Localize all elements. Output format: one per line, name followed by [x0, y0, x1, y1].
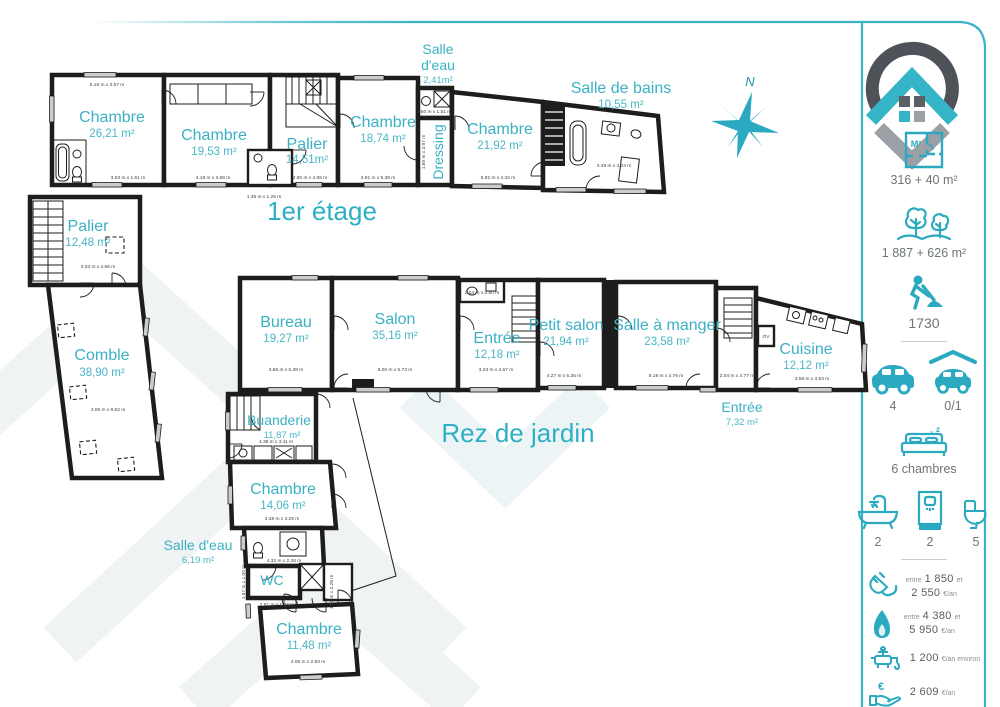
- room-label: Salon: [375, 311, 416, 328]
- cost-electricity: entre 1 850 et 2 550 €/an: [868, 572, 963, 602]
- shower-icon: [913, 490, 947, 532]
- title-1er-etage: 1er étage: [267, 196, 377, 226]
- room-dim: 4.06 m x 2.93 m: [291, 659, 325, 665]
- stat-bathtubs: 2: [857, 492, 899, 549]
- room-dim: 1.55 m x 2.28 m: [329, 575, 335, 609]
- room-dim: 3.58 m x 3.53 m: [795, 376, 829, 382]
- cost-value: 1 850: [925, 573, 954, 585]
- room-dim: 3.23 m x 4.67 m: [479, 367, 513, 373]
- stat-bathrooms: 2 2 5: [857, 490, 991, 549]
- svg-text:z: z: [936, 425, 940, 434]
- closet-row: [170, 84, 252, 104]
- cost-pre: entre: [904, 614, 920, 621]
- room-dim: 1.35 m x 1.25 m: [247, 194, 281, 200]
- baths-value: 2: [875, 535, 882, 549]
- room-dim: 4.38 m x 3.29 m: [265, 516, 299, 522]
- floor-plan-page: N 1er étage Rez de jardin Chambre 26,21 …: [0, 0, 1000, 707]
- room-dim: 1.60 m x 3.97 m: [421, 135, 427, 169]
- room-area: 18,74 m²: [360, 133, 406, 145]
- room-petit-salon: [538, 280, 604, 388]
- room-label: Dressing: [430, 124, 446, 179]
- room-dim: 2.80 m x 4.06 m: [293, 175, 327, 181]
- room-label: WC: [260, 572, 283, 588]
- room-label: Palier: [287, 136, 329, 153]
- room-dim: 3.53 m x 1.61 m: [111, 175, 145, 181]
- land-value: 1 887 + 626 m²: [882, 246, 966, 260]
- room-area: 26,21 m²: [89, 128, 135, 140]
- room-label: Entrée: [721, 399, 762, 415]
- bathtub-icon: [857, 492, 899, 532]
- construction-worker-icon: [901, 274, 947, 312]
- bedrooms-value: 6 chambres: [891, 462, 956, 476]
- room-label: Comble: [74, 347, 129, 364]
- gas-flame-icon: [868, 609, 896, 639]
- stat-land: 1 887 + 626 m²: [882, 203, 966, 260]
- parking-value: 4: [890, 399, 897, 413]
- room-area: 23,58 m²: [644, 336, 690, 348]
- room-dim: 2.04 m x 0.80 m: [465, 290, 499, 296]
- cost-value: 1 200: [910, 652, 939, 664]
- svg-text:€: €: [878, 681, 884, 693]
- room-dim: 5.19 m x 4.76 m: [649, 373, 683, 379]
- room-area: 19,53 m²: [191, 146, 237, 158]
- room-label: d'eau: [421, 57, 455, 73]
- room-area: 10,55 m²: [598, 99, 644, 111]
- room-salle-a-manger: [616, 282, 716, 388]
- room-dim: 3.66 m x 5.38 m: [269, 367, 303, 373]
- room-area: 2,41m²: [423, 75, 453, 86]
- room-label: Salle à manger: [613, 317, 721, 334]
- room-label: Salle de bains: [571, 80, 672, 97]
- divider: [901, 559, 947, 560]
- room-dim: 4.27 m x 5.35 m: [547, 373, 581, 379]
- garage-value: 0/1: [944, 399, 961, 413]
- stat-garage: 0/1: [929, 350, 977, 413]
- stairwell-block: [543, 104, 565, 166]
- cost-unit: €/an: [943, 591, 957, 598]
- room-label: Salle: [422, 41, 453, 57]
- closet-label: OV: [763, 334, 771, 340]
- svg-text:z: z: [930, 431, 933, 437]
- stat-surface: M² 316 + 40 m²: [890, 130, 957, 187]
- showers-value: 2: [927, 535, 934, 549]
- room-area: 21,94 m²: [543, 336, 589, 348]
- room-area: 12,12 m²: [783, 360, 829, 372]
- room-label: Entrée: [473, 330, 520, 347]
- room-dim: 5.92 m x 4.32 m: [481, 175, 515, 181]
- electric-plug-icon: [868, 572, 898, 602]
- room-comble: [48, 285, 162, 478]
- hand-euro-icon: €: [868, 679, 902, 707]
- cost-water: 1 200 €/an environ: [868, 646, 980, 672]
- room-area: 12,48 m²: [65, 237, 111, 249]
- cost-value: 2 609: [910, 686, 939, 698]
- title-rez-de-jardin: Rez de jardin: [441, 418, 594, 448]
- toilets-value: 5: [973, 535, 980, 549]
- room-label: Palier: [68, 218, 110, 235]
- room-dim: 6.00 m x 5.73 m: [378, 367, 412, 373]
- floor-plan-drawing: N 1er étage Rez de jardin Chambre 26,21 …: [0, 0, 1000, 707]
- compass-north-label: N: [745, 74, 755, 89]
- cost-value: 4 380: [923, 610, 952, 622]
- room-label: Cuisine: [779, 341, 832, 358]
- room-dim: 1.60 m x 1.51 m: [417, 109, 451, 115]
- cost-unit: €/an environ: [942, 656, 981, 663]
- room-label: Chambre: [350, 114, 416, 131]
- room-area: 35,16 m²: [372, 330, 418, 342]
- room-dim: 3.49 m x 3.04 m: [597, 163, 631, 169]
- room-area: 6,19 m²: [182, 555, 214, 566]
- room-area: 12,18 m²: [474, 349, 520, 361]
- cost-mid: et: [955, 614, 961, 621]
- cost-value: 2 550: [911, 587, 940, 599]
- stat-parking: 4 0/1: [871, 350, 977, 413]
- room-dim: 3.91 m x 5.38 m: [361, 175, 395, 181]
- compass-rose: N: [711, 74, 779, 158]
- stat-year: 1730: [901, 274, 947, 331]
- room-area: 38,90 m²: [79, 367, 125, 379]
- room-area: 7,32 m²: [726, 417, 758, 428]
- stat-cars: 4: [871, 360, 915, 413]
- stat-showers: 2: [913, 490, 947, 549]
- room-label: Chambre: [250, 481, 316, 498]
- water-tap-icon: [868, 646, 902, 672]
- cost-taxes: € 2 609 €/an: [868, 679, 956, 707]
- stat-toilets: 5: [961, 498, 991, 549]
- room-label: Chambre: [276, 621, 342, 638]
- room-dim: 5.16 m x 3.57 m: [90, 82, 124, 88]
- cost-value: 5 950: [909, 624, 938, 636]
- room-dim: 2.81 m x 1.23 m: [260, 602, 294, 608]
- room-label: Bureau: [260, 314, 312, 331]
- room-label: Salle d'eau: [164, 537, 233, 553]
- surface-value: 316 + 40 m²: [890, 173, 957, 187]
- room-dim: 1.97 m x 1.00 m: [241, 565, 247, 599]
- cost-pre: entre: [906, 577, 922, 584]
- bed-icon: z z: [898, 425, 950, 459]
- room-dim: 2.04 m x 4.77 m: [720, 373, 754, 379]
- stat-bedrooms: z z 6 chambres: [891, 425, 956, 476]
- room-area: 21,92 m²: [477, 140, 523, 152]
- room-area: 19,27 m²: [263, 333, 309, 345]
- room-dim: 4.32 m x 2.28 m: [267, 558, 301, 564]
- room-dim: 4.38 m x 3.11 m: [259, 439, 293, 445]
- floorplan-icon: M²: [903, 130, 945, 170]
- room-dim: 3.03 m x 4.66 m: [81, 264, 115, 270]
- room-area: 11,48 m²: [287, 640, 332, 652]
- cost-mid: et: [957, 577, 963, 584]
- year-value: 1730: [908, 315, 939, 331]
- room-label: Chambre: [79, 109, 145, 126]
- room-label: Chambre: [181, 127, 247, 144]
- room-label: Petit salon: [529, 317, 604, 334]
- room-label: Buanderie: [247, 412, 311, 428]
- room-area: 14,51m²: [286, 154, 328, 166]
- cost-gas: entre 4 380 et 5 950 €/an: [868, 609, 961, 639]
- room-label: Chambre: [467, 121, 533, 138]
- room-area: 14,06 m²: [260, 500, 306, 512]
- property-stats-sidebar: M² 316 + 40 m² 1 887 + 626 m² 1730: [864, 14, 984, 707]
- car-icon: [871, 360, 915, 396]
- toilet-icon: [961, 498, 991, 532]
- room-chambre-1874: [338, 78, 418, 185]
- divider: [901, 341, 947, 342]
- m2-label: M²: [911, 139, 922, 149]
- garage-icon: [929, 350, 977, 396]
- trees-icon: [896, 203, 952, 243]
- cost-unit: €/an: [941, 628, 955, 635]
- annual-costs: entre 1 850 et 2 550 €/an entre 4 380 et…: [868, 572, 980, 707]
- room-dim: 4.06 m x 9.62 m: [91, 407, 125, 413]
- cost-unit: €/an: [942, 690, 956, 697]
- room-dim: 4.19 m x 3.68 m: [196, 175, 230, 181]
